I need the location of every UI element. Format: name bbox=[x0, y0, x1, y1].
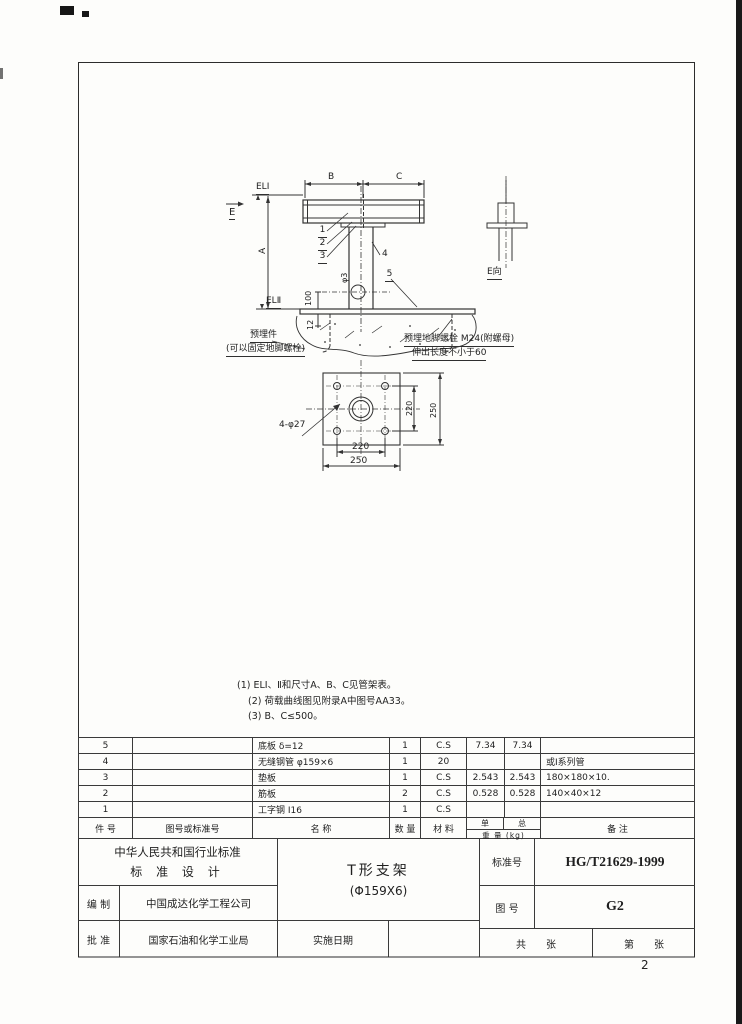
approved-by: 国家石油和化学工业局 bbox=[120, 921, 278, 957]
remark: 140×40×12 bbox=[541, 786, 695, 801]
plan-dim-250-bottom: 250 bbox=[350, 457, 367, 467]
implement-date-label: 实施日期 bbox=[278, 921, 389, 957]
figure-no-value: G2 bbox=[535, 886, 695, 929]
total-weight: 7.34 bbox=[505, 738, 541, 753]
part-name: 筋板 bbox=[253, 786, 390, 801]
item-no: 3 bbox=[79, 770, 133, 785]
col-weight-header: 单 总 重 量 (kg) bbox=[467, 818, 541, 838]
figure-no-label: 图 号 bbox=[480, 886, 535, 929]
bolt-detail-view-label: E向 bbox=[487, 268, 502, 280]
embed-note-line1: 预埋件 bbox=[250, 331, 277, 343]
vent-hole-label: φ3 bbox=[340, 273, 349, 283]
plan-dim-220-bottom: 220 bbox=[352, 443, 369, 453]
callout-3: 3 bbox=[318, 252, 327, 264]
callout-1: 1 bbox=[318, 226, 327, 238]
callout-5: 5 bbox=[385, 270, 394, 282]
note-line-2: (2) 荷载曲线图见附录A中图号AA33。 bbox=[248, 697, 410, 707]
table-row: 3 垫板 1 C.S 2.543 2.543 180×180×10. bbox=[79, 770, 695, 786]
total-sheets-cell: 共 张 bbox=[480, 929, 593, 957]
plan-dim-220-right: 220 bbox=[405, 401, 414, 416]
col-remarks-header: 备 注 bbox=[541, 818, 695, 838]
material: C.S bbox=[421, 770, 467, 785]
anchor-note-line2: 伸出长度不小于60 bbox=[412, 349, 486, 361]
dim-100-label: 100 bbox=[304, 291, 313, 306]
std-no bbox=[133, 770, 253, 785]
col-drawing-no-header: 图号或标准号 bbox=[133, 818, 253, 838]
drawing-title-cell: T形支架 (Φ159X6) bbox=[278, 838, 480, 921]
total-weight: 0.528 bbox=[505, 786, 541, 801]
implement-date-value bbox=[389, 921, 480, 957]
qty: 1 bbox=[390, 802, 421, 817]
dim-12-label: 12 bbox=[306, 320, 315, 330]
drawing-title-line2: (Φ159X6) bbox=[350, 884, 408, 898]
item-no: 2 bbox=[79, 786, 133, 801]
qty: 2 bbox=[390, 786, 421, 801]
approved-label: 批 准 bbox=[78, 921, 120, 957]
unit-weight bbox=[467, 802, 505, 817]
part-name: 无缝钢管 φ159×6 bbox=[253, 754, 390, 769]
qty: 1 bbox=[390, 738, 421, 753]
remark bbox=[541, 738, 695, 753]
callout-2: 2 bbox=[318, 239, 327, 251]
page-number: 2 bbox=[641, 959, 649, 972]
col-weight-total-header: 总 bbox=[504, 818, 540, 829]
plan-dim-250-right: 250 bbox=[429, 403, 438, 418]
anchor-note-line1: 预埋地脚螺栓 M24(附螺母) bbox=[404, 335, 514, 347]
org-header-cell: 中华人民共和国行业标准 标 准 设 计 bbox=[78, 838, 278, 886]
view-e-arrow-label: E bbox=[229, 207, 235, 220]
col-material-header: 材 料 bbox=[421, 818, 467, 838]
dim-a-label: A bbox=[258, 248, 268, 254]
total-weight bbox=[505, 802, 541, 817]
unit-weight: 7.34 bbox=[467, 738, 505, 753]
table-row: 5 底板 δ=12 1 C.S 7.34 7.34 bbox=[79, 738, 695, 754]
sheet-no-cell: 第 张 bbox=[593, 929, 695, 957]
qty: 1 bbox=[390, 754, 421, 769]
col-name-header: 名 称 bbox=[253, 818, 390, 838]
parts-table: 5 底板 δ=12 1 C.S 7.34 7.34 4 无缝钢管 φ159×6 … bbox=[78, 737, 695, 839]
title-block: 中华人民共和国行业标准 标 准 设 计 编 制 中国成达化学工程公司 批 准 国… bbox=[78, 838, 695, 957]
std-no bbox=[133, 754, 253, 769]
note-line-3: (3) B、C≤500。 bbox=[248, 712, 323, 722]
std-no bbox=[133, 786, 253, 801]
remark: 或Ⅰ系列管 bbox=[541, 754, 695, 769]
col-item-header: 件 号 bbox=[79, 818, 133, 838]
org-line2: 标 准 设 计 bbox=[130, 863, 224, 880]
part-name: 底板 δ=12 bbox=[253, 738, 390, 753]
material: C.S bbox=[421, 786, 467, 801]
prepared-label: 编 制 bbox=[78, 886, 120, 921]
material: C.S bbox=[421, 802, 467, 817]
embed-note-line2: (可以固定地脚螺栓) bbox=[226, 345, 305, 357]
material: C.S bbox=[421, 738, 467, 753]
dim-b-label: B bbox=[328, 173, 334, 183]
remark bbox=[541, 802, 695, 817]
drawing-title-line1: T形支架 bbox=[347, 860, 410, 880]
col-qty-header: 数 量 bbox=[390, 818, 421, 838]
std-no bbox=[133, 802, 253, 817]
total-weight: 2.543 bbox=[505, 770, 541, 785]
unit-weight: 2.543 bbox=[467, 770, 505, 785]
dim-c-label: C bbox=[396, 173, 402, 183]
elevation-el-top-label: ELⅠ bbox=[256, 183, 269, 195]
org-line1: 中华人民共和国行业标准 bbox=[114, 844, 241, 860]
table-row: 4 无缝钢管 φ159×6 1 20 或Ⅰ系列管 bbox=[79, 754, 695, 770]
table-header-row: 件 号 图号或标准号 名 称 数 量 材 料 单 总 重 量 (kg) 备 注 bbox=[79, 818, 695, 839]
table-row: 2 筋板 2 C.S 0.528 0.528 140×40×12 bbox=[79, 786, 695, 802]
unit-weight bbox=[467, 754, 505, 769]
std-no bbox=[133, 738, 253, 753]
callout-4: 4 bbox=[382, 250, 388, 260]
elevation-el-bottom-label: ELⅡ bbox=[266, 297, 281, 309]
unit-weight: 0.528 bbox=[467, 786, 505, 801]
part-name: 工字钢 I16 bbox=[253, 802, 390, 817]
plan-holes-label: 4-φ27 bbox=[279, 421, 305, 431]
col-weight-unit-header: 单 bbox=[467, 818, 504, 829]
item-no: 4 bbox=[79, 754, 133, 769]
standard-no-value: HG/T21629-1999 bbox=[535, 838, 695, 886]
remark: 180×180×10. bbox=[541, 770, 695, 785]
standard-no-label: 标准号 bbox=[480, 838, 535, 886]
prepared-by: 中国成达化学工程公司 bbox=[120, 886, 278, 921]
table-row: 1 工字钢 I16 1 C.S bbox=[79, 802, 695, 818]
material: 20 bbox=[421, 754, 467, 769]
part-name: 垫板 bbox=[253, 770, 390, 785]
note-line-1: (1) ELⅠ、Ⅱ和尺寸A、B、C见管架表。 bbox=[237, 681, 396, 691]
item-no: 5 bbox=[79, 738, 133, 753]
total-weight bbox=[505, 754, 541, 769]
item-no: 1 bbox=[79, 802, 133, 817]
qty: 1 bbox=[390, 770, 421, 785]
